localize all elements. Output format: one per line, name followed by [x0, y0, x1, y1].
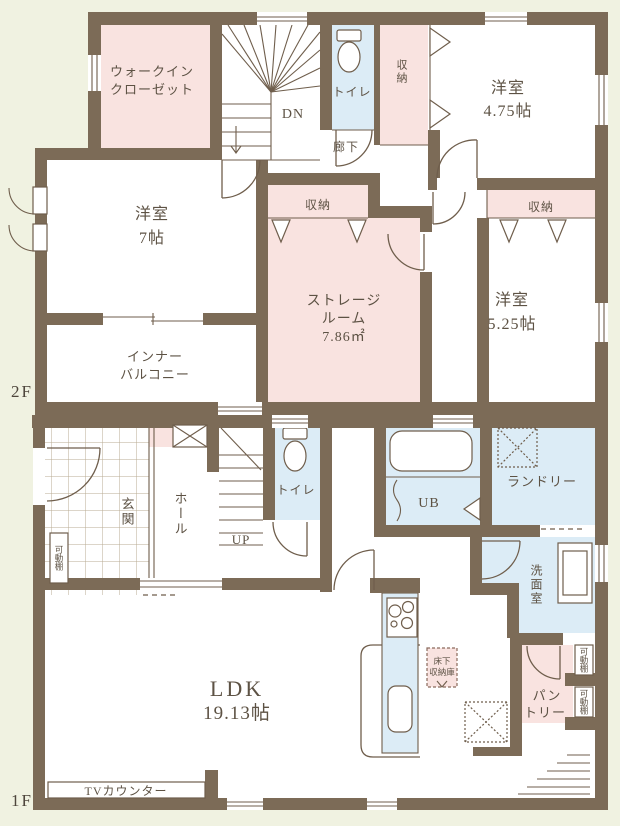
label-floor-1f: 1F: [11, 791, 33, 810]
label-toilet-2f: トイレ: [332, 85, 371, 99]
label-room-475-1: 洋室: [491, 79, 525, 97]
label-inner-balcony-1: インナー: [127, 349, 183, 364]
label-underfloor-2: 収納庫: [429, 667, 455, 677]
label-underfloor-1: 床下: [433, 656, 451, 666]
label-washroom: 洗面室: [529, 564, 543, 606]
label-room-7-1: 洋室: [135, 205, 169, 223]
floor-1f: 玄関 ホール UP 可動棚 トイレ UB ランドリー 洗面室 LDK 19.13…: [11, 415, 608, 810]
label-ldk-1: LDK: [210, 676, 264, 701]
floor-plan: ウォークイン クローゼット DN トイレ 収納 洋室 4.75帖 廊下 洋室 7…: [0, 0, 620, 826]
label-storage-2: ルーム: [322, 312, 367, 327]
label-movable-shelf-left: 可動棚: [54, 545, 64, 571]
label-pantry-2: トリー: [524, 705, 566, 720]
label-toilet-1f: トイレ: [276, 483, 315, 497]
room-closet-top: [380, 25, 428, 145]
label-storage-3: 7.86㎡: [322, 329, 366, 345]
floor-2f: ウォークイン クローゼット DN トイレ 収納 洋室 4.75帖 廊下 洋室 7…: [9, 12, 608, 415]
label-room-7-2: 7帖: [139, 229, 165, 247]
label-room-475-2: 4.75帖: [483, 102, 532, 120]
toilet-icon-2f: [337, 30, 361, 72]
label-hallway: 廊下: [333, 139, 359, 154]
label-movable-shelf-bottom: 可動棚: [579, 689, 589, 715]
label-entrance: 玄関: [120, 497, 135, 527]
label-hall: ホール: [173, 492, 188, 537]
label-ldk-2: 19.13帖: [203, 702, 271, 724]
label-tv-counter: TVカウンター: [85, 784, 168, 798]
hall-storage-x-box: [173, 425, 207, 447]
room-storage: [268, 218, 420, 402]
label-closet-right: 収納: [528, 200, 554, 214]
label-walk-in-closet-2: クローゼット: [110, 82, 194, 97]
label-floor-2f: 2F: [11, 382, 33, 401]
label-stairs-up: UP: [232, 532, 251, 547]
label-closet-center: 収納: [305, 198, 331, 212]
sink-icon: [388, 686, 412, 732]
label-room-525-1: 洋室: [495, 291, 529, 309]
stove-icon: [387, 598, 417, 637]
label-walk-in-closet-1: ウォークイン: [110, 64, 194, 79]
label-unit-bath: UB: [418, 496, 439, 511]
washbasin-icon: [558, 543, 592, 603]
label-storage-1: ストレージ: [307, 294, 382, 309]
label-inner-balcony-2: バルコニー: [120, 367, 190, 382]
label-pantry-1: パン: [533, 688, 562, 703]
label-closet-top: 収納: [395, 59, 408, 85]
label-room-525-2: 5.25帖: [487, 315, 536, 333]
toilet-icon-1f: [283, 428, 307, 471]
label-laundry: ランドリー: [507, 474, 577, 489]
label-movable-shelf-top: 可動棚: [579, 647, 589, 673]
label-stairs-down: DN: [282, 107, 304, 122]
